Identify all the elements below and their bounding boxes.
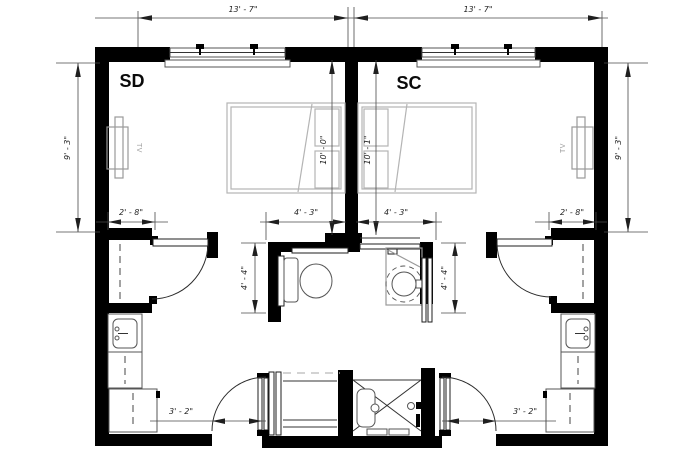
faucet-knob	[584, 327, 588, 331]
dim-top-left: 13' - 7"	[228, 5, 257, 14]
pocket-door-handle	[388, 249, 397, 254]
window-tick	[507, 49, 509, 55]
grab-bar-side	[278, 256, 284, 306]
wall-shower-divider	[338, 370, 353, 437]
window-sc	[417, 44, 540, 67]
window-tick	[196, 44, 204, 49]
tv-sd: TV	[107, 117, 142, 178]
toilet-tank	[284, 258, 298, 302]
vanity	[386, 248, 423, 305]
dim-sc-depth: 10' - 1"	[363, 135, 372, 164]
fridge-handle	[543, 391, 547, 398]
dim-sc-bath: 4' - 3"	[384, 208, 408, 217]
floor-plan-svg: TV TV	[0, 0, 700, 466]
door-strike-block-sd	[149, 296, 157, 304]
dim-bath-right: 4' - 4"	[440, 266, 449, 290]
faucet-knob	[115, 327, 119, 331]
door-sd-bath	[152, 239, 208, 299]
kitchenette-sc	[543, 314, 595, 432]
dim-sd-closet: 2' - 8"	[119, 208, 143, 217]
window-tick	[250, 44, 258, 49]
room-label-sd: SD	[119, 71, 144, 91]
walls	[95, 47, 608, 448]
tv-label-sc: TV	[560, 143, 567, 153]
dim-sd-bath: 4' - 3"	[294, 208, 318, 217]
dim-sd-entry: 3' - 2"	[169, 407, 193, 416]
door-stub-sd	[207, 232, 218, 258]
closet-bifold-door	[269, 372, 281, 435]
wall-sc-closet-south	[551, 303, 608, 313]
grab-bar-top	[292, 248, 348, 253]
wall-sd-closet-south	[95, 303, 152, 313]
door-sc-entry	[439, 373, 496, 436]
window-tick	[454, 49, 456, 55]
tv-sc: TV	[560, 117, 593, 178]
faucet-knob	[115, 336, 119, 340]
shower-bar	[416, 414, 420, 427]
door-stub-sc	[486, 232, 497, 258]
closet-alcoves	[120, 244, 583, 300]
room-label-sc: SC	[396, 73, 421, 93]
toilet-bowl	[300, 264, 332, 298]
wall-sc-south	[551, 228, 608, 240]
wall-center	[345, 47, 358, 233]
shower	[353, 380, 421, 435]
tv-label-sd: TV	[135, 143, 142, 153]
wall-shower-right	[421, 368, 435, 437]
floor-plan: TV TV	[0, 0, 700, 466]
dim-side-right: 9' - 3"	[614, 136, 623, 160]
dim-sd-depth: 10' - 0"	[319, 135, 328, 164]
dim-sc-entry: 3' - 2"	[513, 407, 537, 416]
wall-bottom-right	[496, 434, 608, 446]
door-sc-bath	[497, 239, 552, 297]
shower-threshold	[367, 429, 387, 435]
dim-top-right: 13' - 7"	[463, 5, 492, 14]
kitchenette-sd	[108, 314, 160, 432]
window-tick	[451, 44, 459, 49]
blanket-fold	[395, 104, 407, 192]
window-tick	[253, 49, 255, 55]
blanket-fold	[298, 104, 312, 192]
window-tick	[504, 44, 512, 49]
door-sd-entry	[212, 373, 269, 436]
window-sd	[165, 44, 290, 67]
window-tick	[199, 49, 201, 55]
dim-side-left: 9' - 3"	[63, 136, 72, 160]
closet-interior	[283, 373, 340, 427]
round-sink	[392, 272, 416, 296]
wall-right	[594, 47, 608, 446]
dim-sc-closet: 2' - 8"	[560, 208, 584, 217]
dim-bath-left: 4' - 4"	[240, 266, 249, 290]
wall-center-footer	[325, 233, 362, 243]
shower-threshold	[389, 429, 409, 435]
wall-bottom-left	[95, 434, 212, 446]
wall-sd-south	[95, 228, 152, 240]
wall-bottom-center	[262, 436, 442, 448]
faucet-knob	[584, 336, 588, 340]
shower-control	[408, 403, 415, 410]
wall-left	[95, 47, 109, 446]
shower-drain	[371, 404, 379, 412]
fridge-handle	[156, 391, 160, 398]
shower-head	[416, 402, 421, 409]
